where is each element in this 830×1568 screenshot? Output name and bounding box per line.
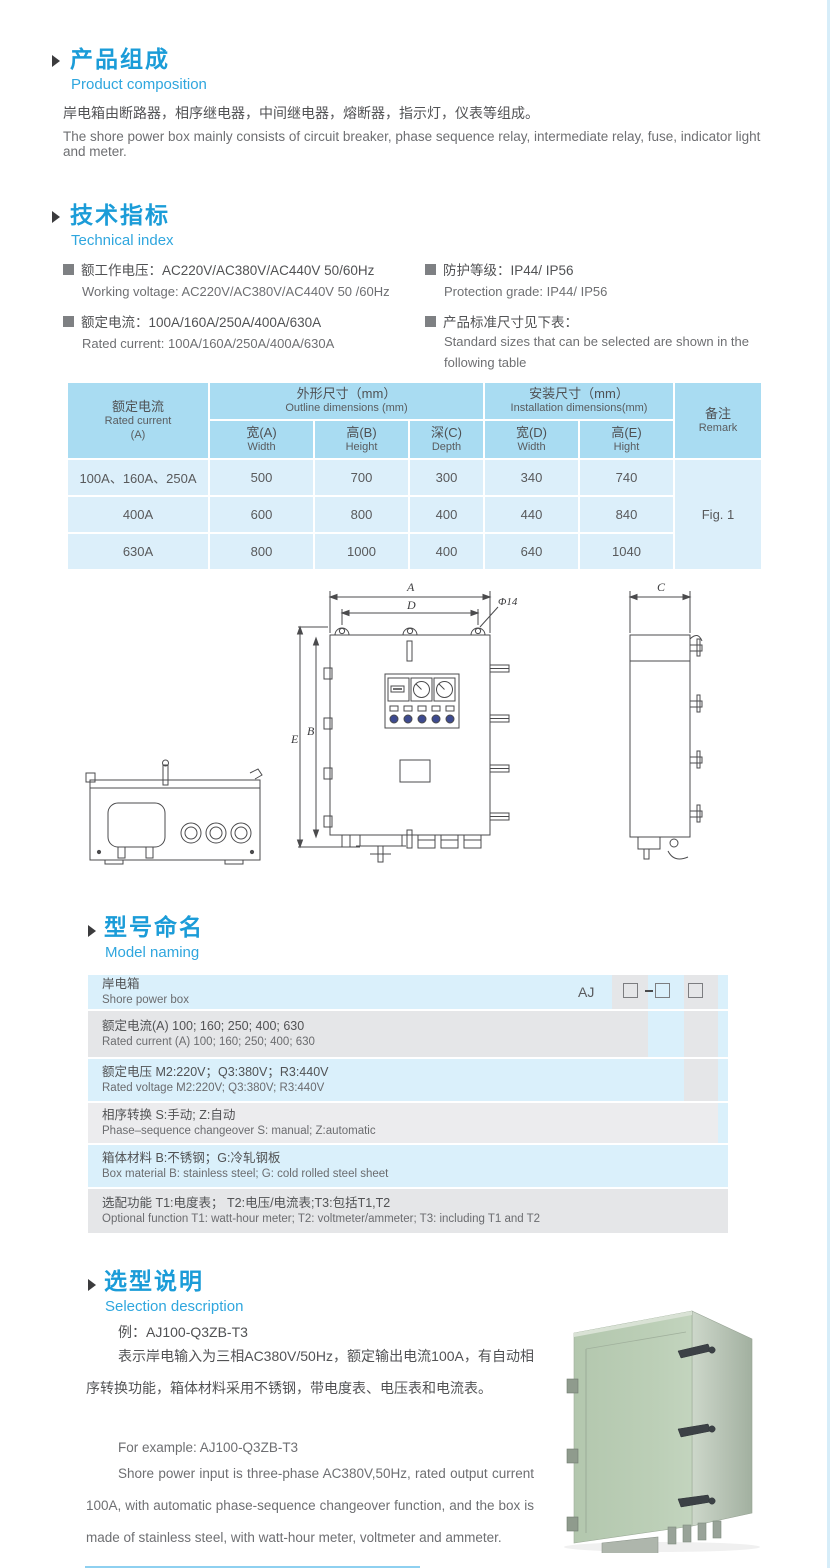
table-cell-remark: Fig. 1 xyxy=(675,460,761,569)
selection-body-en: Shore power input is three-phase AC380V,… xyxy=(86,1458,534,1554)
spec-rated-current-en: Rated current: 100A/160A/250A/400A/630A xyxy=(82,336,334,351)
header-text: Remark xyxy=(699,422,738,436)
header-text: 安装尺寸（mm） xyxy=(529,386,629,402)
table-cell: 630A xyxy=(68,534,208,569)
header-text: Outline dimensions (mm) xyxy=(285,402,407,416)
header-text: 额定电流 xyxy=(112,399,164,415)
selection-body-cn: 表示岸电输入为三相AC380V/50Hz，额定输出电流100A，有自动相序转换功… xyxy=(86,1340,534,1404)
row-label-en: Shore power box xyxy=(102,993,582,1008)
section-arrow-icon xyxy=(52,211,60,223)
dim-label-phi14: Φ14 xyxy=(498,596,518,608)
spec-rated-current-cn: 额定电流：100A/160A/250A/400A/630A xyxy=(63,311,321,331)
col-group-outline-dimensions: 外形尺寸（mm） Outline dimensions (mm) xyxy=(210,383,483,419)
naming-heading-en: Model naming xyxy=(105,945,199,960)
product-photo xyxy=(540,1293,802,1553)
col-header-width-d: 宽(D) Width xyxy=(485,421,578,458)
naming-row-rated-current: 额定电流(A) 100; 160; 250; 400; 630 Rated cu… xyxy=(102,1011,622,1057)
col-header-height-b: 高(B) Height xyxy=(315,421,408,458)
technical-drawing: A D E B C Φ14 xyxy=(60,575,770,880)
table-cell: 400A xyxy=(68,497,208,532)
row-label-en: Rated current (A) 100; 160; 250; 400; 63… xyxy=(102,1035,622,1050)
header-text: 宽(A) xyxy=(246,425,276,441)
header-text: 外形尺寸（mm） xyxy=(297,386,397,402)
header-text: (A) xyxy=(131,429,146,443)
section-arrow-icon xyxy=(88,1279,96,1291)
col-header-depth-c: 深(C) Depth xyxy=(410,421,483,458)
table-cell: 1000 xyxy=(315,534,408,569)
header-text: Hight xyxy=(614,441,640,455)
row-label-cn: 额定电压 M2:220V；Q3:380V；R3:440V xyxy=(102,1064,662,1081)
col-header-rated-current: 额定电流 Rated current (A) xyxy=(68,383,208,458)
table-cell: 340 xyxy=(485,460,578,495)
header-text: 高(E) xyxy=(611,425,641,441)
bottom-view-drawing xyxy=(86,760,262,864)
spec-text: 产品标准尺寸见下表： xyxy=(443,311,578,331)
section-arrow-icon xyxy=(52,55,60,67)
table-cell: 740 xyxy=(580,460,673,495)
spec-text: 额工作电压：AC220V/AC380V/AC440V 50/60Hz xyxy=(81,259,374,279)
header-text: 宽(D) xyxy=(516,425,547,441)
spec-text: 防护等级：IP44/ IP56 xyxy=(443,259,574,279)
table-cell: 700 xyxy=(315,460,408,495)
table-cell: 800 xyxy=(315,497,408,532)
col-header-hight-e: 高(E) Hight xyxy=(580,421,673,458)
header-text: 备注 xyxy=(705,406,731,422)
model-naming-table: AJ 岸电箱 Shore power box 额定电流(A) 100; 160;… xyxy=(88,975,728,1233)
col-group-installation-dimensions: 安装尺寸（mm） Installation dimensions(mm) xyxy=(485,383,673,419)
spec-working-voltage-en: Working voltage: AC220V/AC380V/AC440V 50… xyxy=(82,284,390,299)
bullet-square-icon xyxy=(63,316,74,327)
header-text: Rated current xyxy=(105,415,172,429)
header-text: 高(B) xyxy=(346,425,376,441)
dim-label-a: A xyxy=(406,580,415,594)
dim-label-c: C xyxy=(657,580,666,594)
naming-row-shore-power-box: 岸电箱 Shore power box xyxy=(102,975,582,1009)
spec-standard-size-en: Standard sizes that can be selected are … xyxy=(444,331,749,373)
spec-working-voltage-cn: 额工作电压：AC220V/AC380V/AC440V 50/60Hz xyxy=(63,259,374,279)
row-label-cn: 额定电流(A) 100; 160; 250; 400; 630 xyxy=(102,1018,622,1035)
header-text: Width xyxy=(517,441,545,455)
bullet-square-icon xyxy=(63,264,74,275)
row-label-cn: 箱体材料 B:不锈钢；G:冷轧钢板 xyxy=(102,1150,702,1167)
header-text: Depth xyxy=(432,441,461,455)
model-code-box-1 xyxy=(623,983,638,998)
spec-protection-cn: 防护等级：IP44/ IP56 xyxy=(425,259,574,279)
technical-heading-cn: 技术指标 xyxy=(70,204,170,227)
naming-row-box-material: 箱体材料 B:不锈钢；G:冷轧钢板 Box material B: stainl… xyxy=(102,1145,702,1187)
technical-heading-en: Technical index xyxy=(71,233,174,248)
selection-heading-cn: 选型说明 xyxy=(104,1270,204,1293)
table-cell: 800 xyxy=(210,534,313,569)
table-cell: 1040 xyxy=(580,534,673,569)
row-label-en: Optional function T1: watt-hour meter; T… xyxy=(102,1212,712,1227)
table-cell: 400 xyxy=(410,497,483,532)
spec-text: 额定电流：100A/160A/250A/400A/630A xyxy=(81,311,321,331)
composition-heading-en: Product composition xyxy=(71,77,207,92)
model-code-box-2 xyxy=(655,983,670,998)
spec-standard-size-cn: 产品标准尺寸见下表： xyxy=(425,311,578,331)
table-cell: 600 xyxy=(210,497,313,532)
front-view-drawing xyxy=(298,591,510,862)
dim-label-b: B xyxy=(307,724,315,738)
naming-row-optional-function: 选配功能 T1:电度表； T2:电压/电流表;T3:包括T1,T2 Option… xyxy=(102,1189,712,1233)
table-cell: 840 xyxy=(580,497,673,532)
composition-body-en: The shore power box mainly consists of c… xyxy=(63,129,773,159)
naming-row-phase-sequence: 相序转换 S:手动; Z:自动 Phase–sequence changeove… xyxy=(102,1103,692,1143)
spec-protection-en: Protection grade: IP44/ IP56 xyxy=(444,284,607,299)
row-label-cn: 岸电箱 xyxy=(102,976,582,993)
table-cell: 100A、160A、250A xyxy=(68,460,208,495)
table-cell: 440 xyxy=(485,497,578,532)
model-code-dash xyxy=(645,990,653,992)
dim-label-e: E xyxy=(290,732,299,746)
bullet-square-icon xyxy=(425,316,436,327)
selection-example-en: For example: AJ100-Q3ZB-T3 xyxy=(118,1440,298,1455)
selection-example-cn: 例：AJ100-Q3ZB-T3 xyxy=(118,1322,248,1342)
row-label-cn: 相序转换 S:手动; Z:自动 xyxy=(102,1107,692,1124)
row-label-en: Phase–sequence changeover S: manual; Z:a… xyxy=(102,1124,692,1139)
model-code-box-3 xyxy=(688,983,703,998)
section-arrow-icon xyxy=(88,925,96,937)
table-cell: 400 xyxy=(410,534,483,569)
naming-row-rated-voltage: 额定电压 M2:220V；Q3:380V；R3:440V Rated volta… xyxy=(102,1059,662,1101)
table-cell: 500 xyxy=(210,460,313,495)
table-cell: 640 xyxy=(485,534,578,569)
row-label-cn: 选配功能 T1:电度表； T2:电压/电流表;T3:包括T1,T2 xyxy=(102,1195,712,1212)
composition-heading-cn: 产品组成 xyxy=(70,48,170,71)
selection-heading-en: Selection description xyxy=(105,1299,243,1314)
bullet-square-icon xyxy=(425,264,436,275)
side-view-drawing xyxy=(630,591,702,859)
header-text: 深(C) xyxy=(431,425,462,441)
composition-body-cn: 岸电箱由断路器，相序继电器，中间继电器，熔断器，指示灯，仪表等组成。 xyxy=(63,103,763,123)
col-header-remark: 备注 Remark xyxy=(675,383,761,458)
size-table: 额定电流 Rated current (A) 外形尺寸（mm） Outline … xyxy=(68,383,761,569)
row-label-en: Rated voltage M2:220V; Q3:380V; R3:440V xyxy=(102,1081,662,1096)
naming-heading-cn: 型号命名 xyxy=(104,916,204,939)
dim-label-d: D xyxy=(406,598,416,612)
table-cell: 300 xyxy=(410,460,483,495)
datasheet-page: 产品组成 Product composition 岸电箱由断路器，相序继电器，中… xyxy=(0,0,830,1568)
col-header-width-a: 宽(A) Width xyxy=(210,421,313,458)
header-text: Width xyxy=(247,441,275,455)
row-label-en: Box material B: stainless steel; G: cold… xyxy=(102,1167,702,1182)
header-text: Height xyxy=(346,441,378,455)
header-text: Installation dimensions(mm) xyxy=(511,402,648,416)
